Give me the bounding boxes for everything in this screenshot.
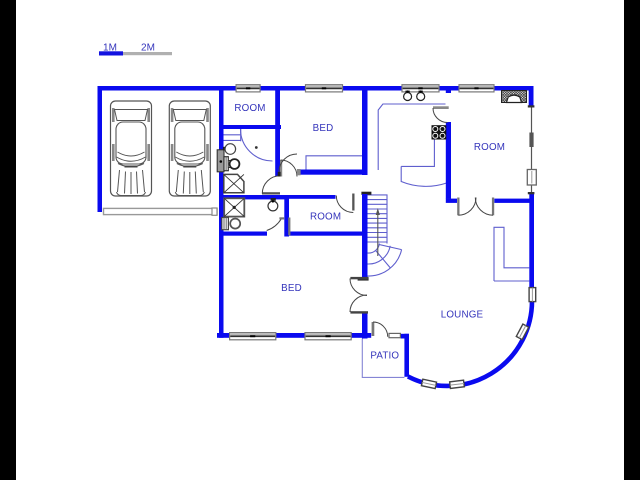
svg-text:LOUNGE: LOUNGE bbox=[441, 310, 484, 321]
svg-text:BED: BED bbox=[281, 283, 302, 294]
svg-text:ROOM: ROOM bbox=[310, 212, 341, 223]
svg-text:BED: BED bbox=[313, 123, 334, 134]
svg-text:PATIO: PATIO bbox=[370, 351, 399, 362]
svg-text:ROOM: ROOM bbox=[234, 103, 265, 114]
svg-text:2M: 2M bbox=[141, 43, 155, 54]
svg-text:ROOM: ROOM bbox=[474, 142, 505, 153]
